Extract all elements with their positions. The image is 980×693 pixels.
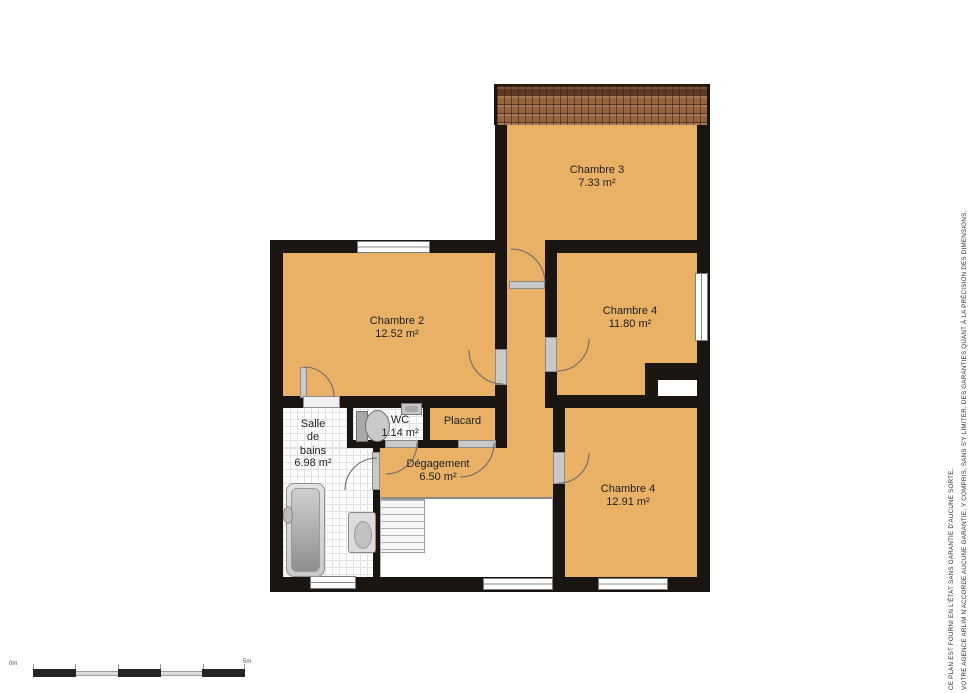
wall-corridor-right-upper xyxy=(545,240,557,338)
bathtub-basin xyxy=(291,488,320,572)
scale-segment xyxy=(33,669,76,677)
wall-bain-right-upper xyxy=(373,445,380,452)
room-name: Chambre 3 xyxy=(537,164,657,177)
scale-segment xyxy=(202,669,245,677)
wall-corridor-left-upper xyxy=(495,253,507,350)
room-name: Chambre 4 xyxy=(570,305,690,318)
wall-mid-horizontal xyxy=(545,395,710,408)
stairs xyxy=(381,499,425,553)
window-chambre4-right xyxy=(695,273,708,341)
door-leaf-bains-chambre2 xyxy=(300,367,307,398)
wall-below-wc-b xyxy=(418,440,458,448)
wall-top-band-right xyxy=(545,240,710,253)
door-chambre4-bottom xyxy=(553,452,565,484)
door-gap-bains-chambre2 xyxy=(303,396,340,408)
wall-left-outer xyxy=(270,240,283,592)
label-placard: Placard xyxy=(425,415,500,428)
room-name: Placard xyxy=(425,415,500,428)
wall-chambre4b-left-lower xyxy=(553,483,565,592)
room-name: Chambre 2 xyxy=(337,315,457,328)
window-stairwell-bottom xyxy=(483,578,553,590)
wall-chambre4b-left-upper xyxy=(553,395,565,452)
disclaimer-line2: VOTRE AGENCE ARLIM N'ACCORDE AUCUNE GARA… xyxy=(961,211,968,690)
window-bains-bottom xyxy=(310,576,356,589)
door-chambre3 xyxy=(509,281,545,289)
bathtub-fixture xyxy=(286,483,325,577)
label-salle-de-bains-name: Salle de bains xyxy=(296,418,330,458)
room-area: 6.50 m² xyxy=(378,471,498,484)
scale-bar: 0m 5m xyxy=(0,655,270,685)
roof-tiles xyxy=(494,84,710,125)
wall-chambre2-bottom-left xyxy=(270,396,303,408)
window-chambre4b-bottom xyxy=(598,578,668,590)
room-area: 1.14 m² xyxy=(370,427,430,440)
niche xyxy=(658,380,697,396)
label-chambre3: Chambre 3 7.33 m² xyxy=(537,164,657,191)
window-chambre2-top xyxy=(357,241,430,253)
door-wc xyxy=(385,440,418,448)
room-area: 12.52 m² xyxy=(337,328,457,341)
label-chambre4-bottom: Chambre 4 12.91 m² xyxy=(568,483,688,510)
door-placard xyxy=(458,440,496,448)
room-name: WC xyxy=(370,414,430,427)
label-salle-de-bains-area: 6.98 m² xyxy=(283,457,343,470)
scale-start-label: 0m xyxy=(9,661,17,667)
disclaimer-line1: CE PLAN EST FOURNI EN L'ÉTAT SANS GARANT… xyxy=(948,468,955,690)
door-chambre4-top xyxy=(545,337,557,372)
scale-end-label: 5m xyxy=(243,659,251,665)
floor-corridor-lower xyxy=(505,405,553,450)
room-name: Chambre 4 xyxy=(568,483,688,496)
scale-segment xyxy=(118,669,161,677)
floor-plan: Chambre 3 7.33 m² Chambre 2 12.52 m² Cha… xyxy=(0,0,980,693)
wc-sink-basin xyxy=(405,406,418,412)
bathtub-faucet-icon xyxy=(283,506,293,524)
label-chambre4-top: Chambre 4 11.80 m² xyxy=(570,305,690,332)
room-area: 6.98 m² xyxy=(283,457,343,470)
sink-basin xyxy=(354,521,372,549)
door-chambre2 xyxy=(495,349,507,385)
label-chambre2: Chambre 2 12.52 m² xyxy=(337,315,457,342)
label-wc: WC 1.14 m² xyxy=(370,414,430,441)
room-name: Dégagement xyxy=(378,458,498,471)
wall-below-placard xyxy=(496,440,505,448)
room-name: Salle de bains xyxy=(296,418,330,458)
label-degagement: Dégagement 6.50 m² xyxy=(378,458,498,485)
room-area: 12.91 m² xyxy=(568,496,688,509)
room-area: 11.80 m² xyxy=(570,318,690,331)
room-area: 7.33 m² xyxy=(537,177,657,190)
wall-niche-top xyxy=(645,363,697,380)
bathroom-sink-fixture xyxy=(348,512,376,553)
